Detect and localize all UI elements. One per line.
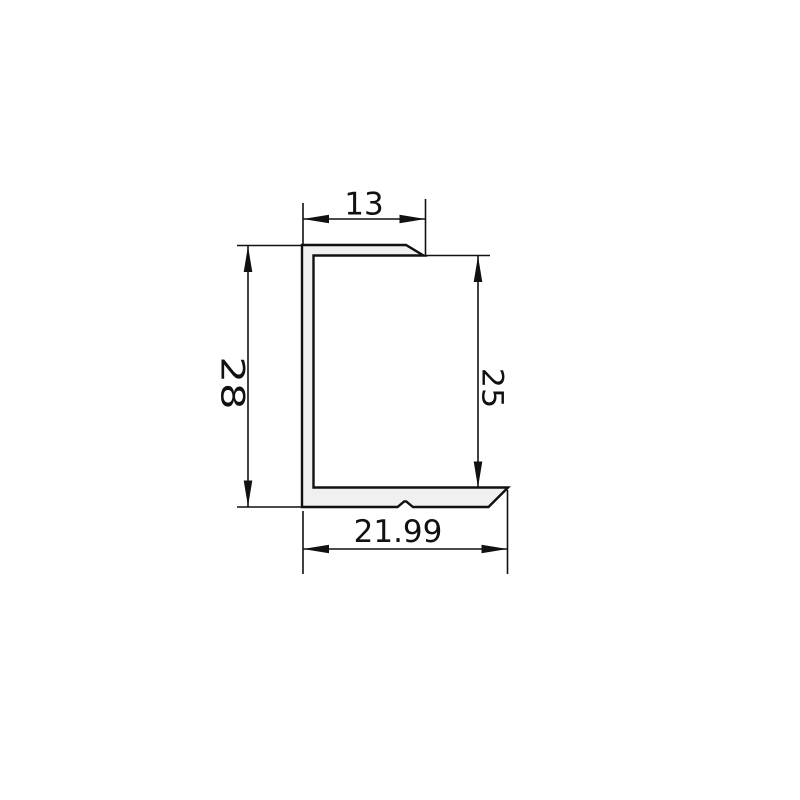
arrowhead-bottom	[474, 462, 483, 488]
dimension-label-inner-height: 25	[475, 368, 508, 409]
arrowhead-left	[303, 545, 329, 554]
drawing-canvas: 13 28 25 21.99	[0, 0, 800, 800]
dimension-label-overall-height: 28	[214, 357, 251, 410]
arrowhead-bottom	[244, 481, 253, 507]
arrowhead-right	[482, 545, 508, 554]
arrowhead-left	[303, 215, 329, 224]
dimension-inner-height: 25	[424, 256, 508, 488]
arrowhead-right	[400, 215, 426, 224]
dimension-label-bottom-width: 21.99	[354, 514, 443, 550]
arrowhead-top	[474, 256, 483, 282]
arrowhead-top	[244, 246, 253, 272]
technical-drawing: 13 28 25 21.99	[0, 0, 800, 800]
dimension-label-top-width: 13	[344, 187, 383, 223]
dimension-overall-height: 28	[214, 246, 301, 508]
